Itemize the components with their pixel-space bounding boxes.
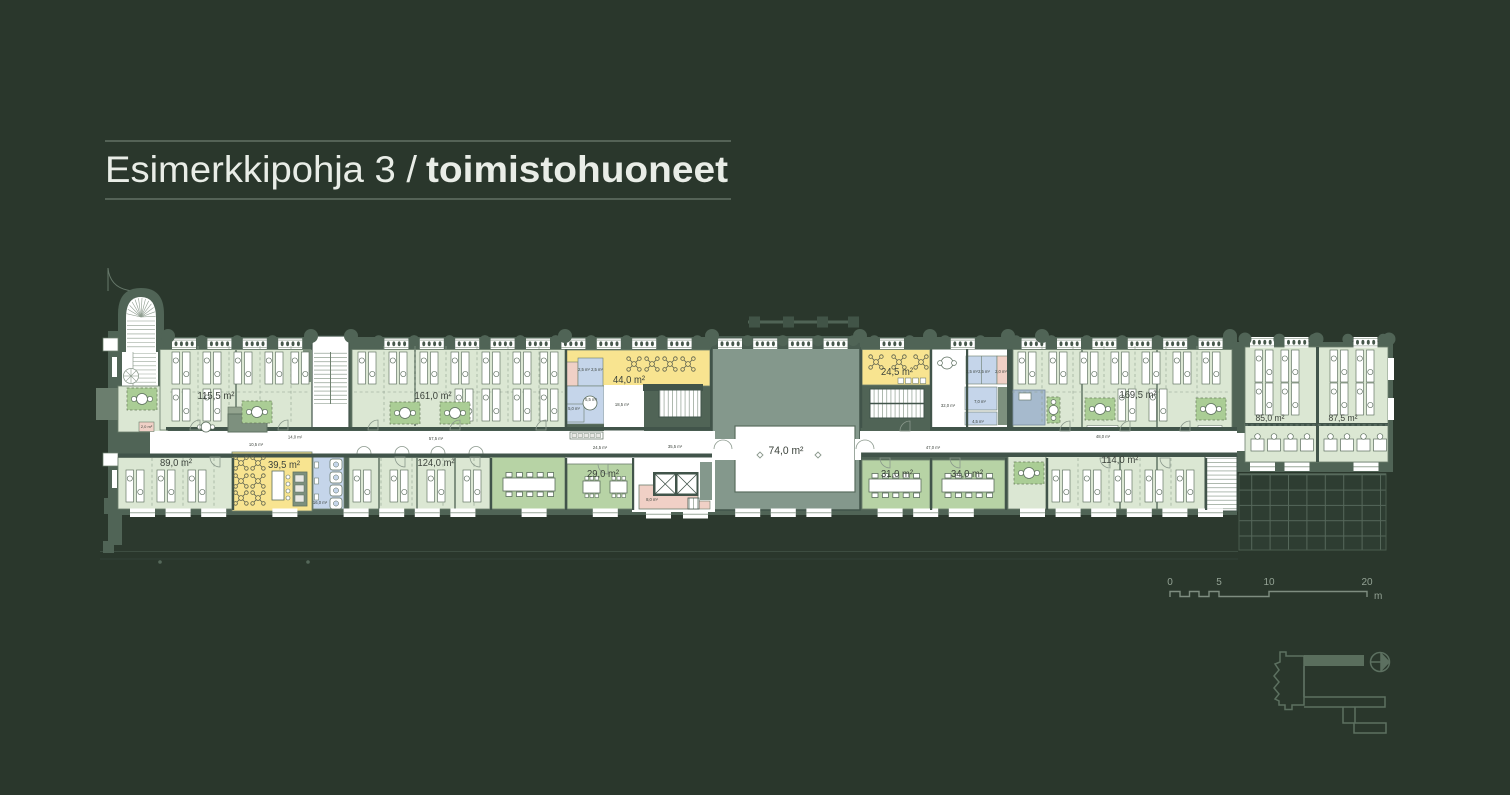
svg-text:57,5 m²: 57,5 m²	[429, 436, 444, 441]
svg-text:2,0 m²: 2,0 m²	[995, 369, 1007, 374]
svg-text:34,0 m²: 34,0 m²	[951, 468, 983, 480]
svg-text:32,0 m²: 32,0 m²	[941, 403, 956, 408]
svg-text:10,5 m²: 10,5 m²	[249, 442, 264, 447]
svg-text:2,5 m²: 2,5 m²	[966, 369, 978, 374]
svg-text:35,5 m²: 35,5 m²	[668, 444, 683, 449]
svg-text:2,5 m²: 2,5 m²	[591, 367, 603, 372]
svg-text:124,0 m²: 124,0 m²	[418, 457, 455, 469]
svg-text:Esimerkkipohja 3 /: Esimerkkipohja 3 /	[105, 149, 418, 190]
svg-text:24,5 m²: 24,5 m²	[593, 445, 608, 450]
svg-text:44,0 m²: 44,0 m²	[613, 374, 645, 386]
svg-text:2,5 m²: 2,5 m²	[578, 367, 590, 372]
svg-text:5: 5	[1216, 577, 1222, 588]
svg-text:2,5 m²: 2,5 m²	[978, 369, 990, 374]
svg-text:31,0 m²: 31,0 m²	[881, 468, 913, 480]
svg-text:24,5 m²: 24,5 m²	[881, 366, 913, 378]
svg-text:16,0 m²: 16,0 m²	[313, 500, 328, 505]
svg-text:169,5 m²: 169,5 m²	[1120, 389, 1157, 401]
svg-text:29,0 m²: 29,0 m²	[587, 468, 619, 480]
svg-text:114,0 m²: 114,0 m²	[1102, 454, 1139, 466]
svg-text:89,0 m²: 89,0 m²	[160, 457, 192, 469]
svg-text:4,5 m²: 4,5 m²	[972, 419, 984, 424]
svg-text:0: 0	[1167, 577, 1173, 588]
svg-text:20: 20	[1361, 577, 1373, 588]
svg-text:8,0 m²: 8,0 m²	[646, 497, 658, 502]
svg-text:10: 10	[1263, 577, 1275, 588]
svg-text:161,0 m²: 161,0 m²	[415, 390, 452, 402]
svg-text:48,0 m²: 48,0 m²	[1096, 434, 1111, 439]
svg-text:74,0 m²: 74,0 m²	[769, 445, 804, 457]
svg-text:toimistohuoneet: toimistohuoneet	[426, 149, 728, 190]
svg-text:5,5 m²: 5,5 m²	[585, 397, 597, 402]
svg-text:2,0 m²: 2,0 m²	[141, 424, 153, 429]
svg-text:85,0 m²: 85,0 m²	[1256, 413, 1285, 424]
svg-text:18,5 m²: 18,5 m²	[615, 402, 630, 407]
svg-text:47,0 m²: 47,0 m²	[926, 445, 941, 450]
svg-text:m: m	[1374, 591, 1382, 602]
svg-text:87,5 m²: 87,5 m²	[1329, 413, 1358, 424]
svg-text:39,5 m²: 39,5 m²	[268, 459, 300, 471]
svg-text:5,0 m²: 5,0 m²	[568, 406, 580, 411]
svg-text:115,5 m²: 115,5 m²	[198, 390, 235, 402]
svg-text:7,0 m²: 7,0 m²	[974, 399, 986, 404]
svg-text:14,0 m²: 14,0 m²	[288, 435, 303, 440]
